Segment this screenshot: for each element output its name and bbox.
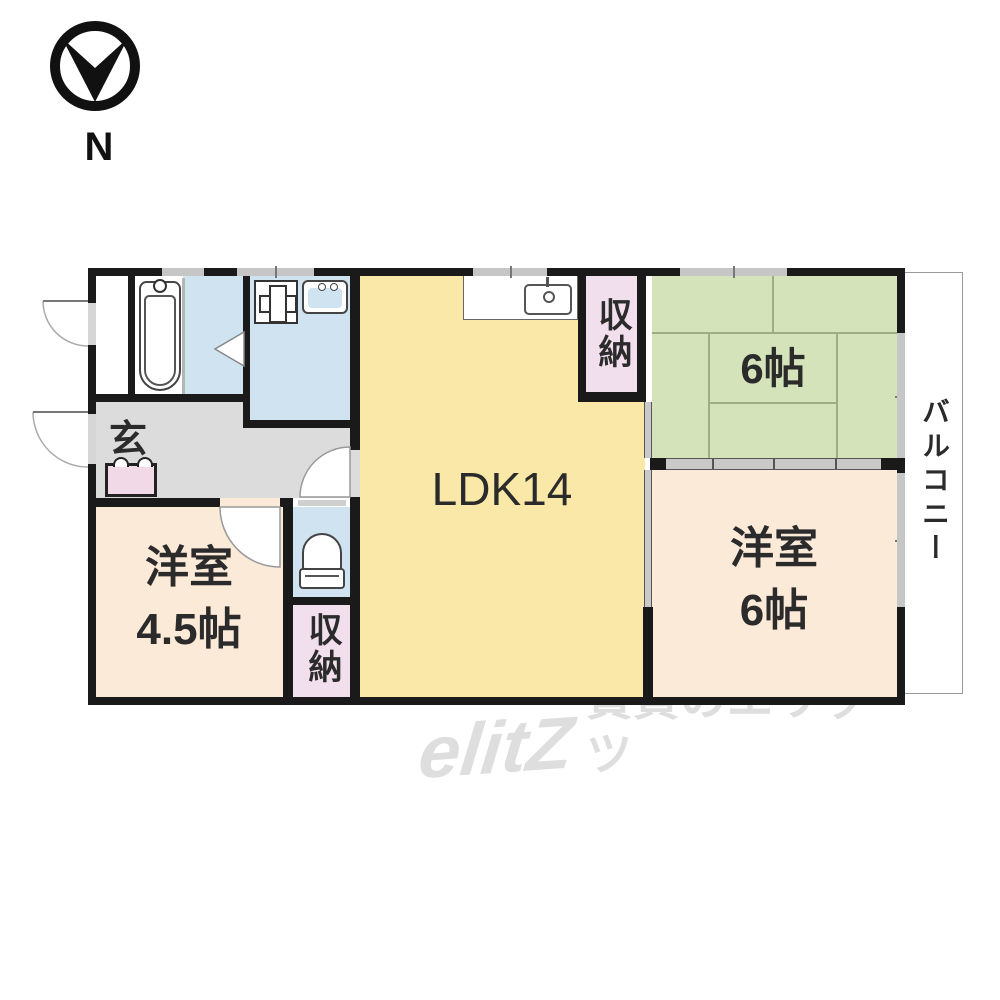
utility-closet [96, 276, 128, 394]
bathtub-icon [139, 281, 181, 391]
toilet-icon [302, 533, 342, 573]
kitchen-faucet-icon [546, 277, 549, 287]
wall [283, 498, 293, 697]
watermark: elitZ 賃貸のエリッツ [420, 698, 890, 782]
slide-tick [712, 459, 714, 469]
door-opening [88, 414, 96, 464]
window-tick [895, 396, 897, 398]
wall [350, 497, 360, 697]
band-endcap [881, 458, 897, 470]
western-room-left-size: 4.5帖 [136, 608, 241, 652]
window [680, 268, 787, 276]
balcony-window [897, 333, 905, 458]
shoe-cabinet-icon [105, 463, 157, 497]
kitchen-faucet-icon [543, 291, 555, 303]
ldk-label: LDK14 [432, 466, 573, 512]
wall [350, 276, 360, 450]
north-label: N [85, 127, 114, 167]
wall [96, 498, 220, 507]
wall [243, 420, 360, 428]
wall [96, 394, 250, 402]
tatami-line [708, 332, 710, 458]
window-tick [510, 266, 512, 278]
washing-machine-pan-icon [254, 280, 298, 324]
door-arc-utility-entry [41, 299, 91, 349]
tatami-line [772, 276, 774, 332]
sliding-door-tatami-bedroom [652, 458, 897, 470]
window [237, 268, 314, 276]
band-endcap [650, 458, 666, 470]
slide-tick [773, 459, 775, 469]
western-room-right-size: 6帖 [740, 589, 808, 633]
door-arc-ldk [296, 443, 354, 501]
window [162, 268, 204, 276]
bathroom-folding-door-icon [212, 329, 246, 369]
window-tick [895, 540, 897, 542]
floorplan-image: elitZ 賃貸のエリッツ N [0, 0, 1000, 1000]
western-room-left-name: 洋室 [145, 546, 233, 590]
elitz-logo: elitZ [416, 710, 577, 787]
toilet-tank-line [305, 575, 339, 577]
washbasin-taps [318, 283, 326, 291]
wall [578, 276, 586, 402]
kitchen-sink-icon [524, 284, 572, 315]
door-arc-front-entrance [31, 410, 89, 468]
washbasin-taps [330, 283, 338, 291]
outer-wall-bottom [88, 697, 905, 705]
western-room-right-name: 洋室 [730, 527, 818, 571]
balcony-window [897, 473, 905, 607]
balcony-label: バルコニー [920, 397, 948, 567]
tatami-line [836, 332, 838, 458]
bath-faucet-icon [153, 279, 167, 293]
window [473, 268, 547, 276]
toilet-tank [299, 568, 345, 589]
tatami-line [652, 332, 897, 334]
storage-top-label: 収納 [595, 297, 629, 371]
bathroom-door-line [182, 278, 185, 394]
tatami-room-label: 6帖 [740, 348, 805, 390]
bathtub-inner-rim [144, 295, 176, 386]
wall [293, 597, 350, 605]
slide-tick [835, 459, 837, 469]
wall [637, 276, 646, 402]
washbasin-icon [302, 280, 348, 314]
tatami-line [708, 402, 838, 404]
storage-bottom-label: 収納 [305, 612, 339, 686]
wall [578, 392, 646, 402]
sliding-door-ldk-bedroom [644, 470, 652, 607]
wall [643, 607, 653, 697]
entrance-label: 玄 [109, 421, 147, 459]
window-tick [733, 266, 735, 278]
wall [128, 276, 135, 394]
western-room-right [652, 470, 897, 697]
sliding-door-ldk-tatami [644, 402, 652, 458]
washbasin-bowl [308, 288, 342, 308]
pan-cross-v [269, 285, 287, 323]
north-compass-icon [45, 18, 145, 118]
window-tick [275, 266, 277, 278]
